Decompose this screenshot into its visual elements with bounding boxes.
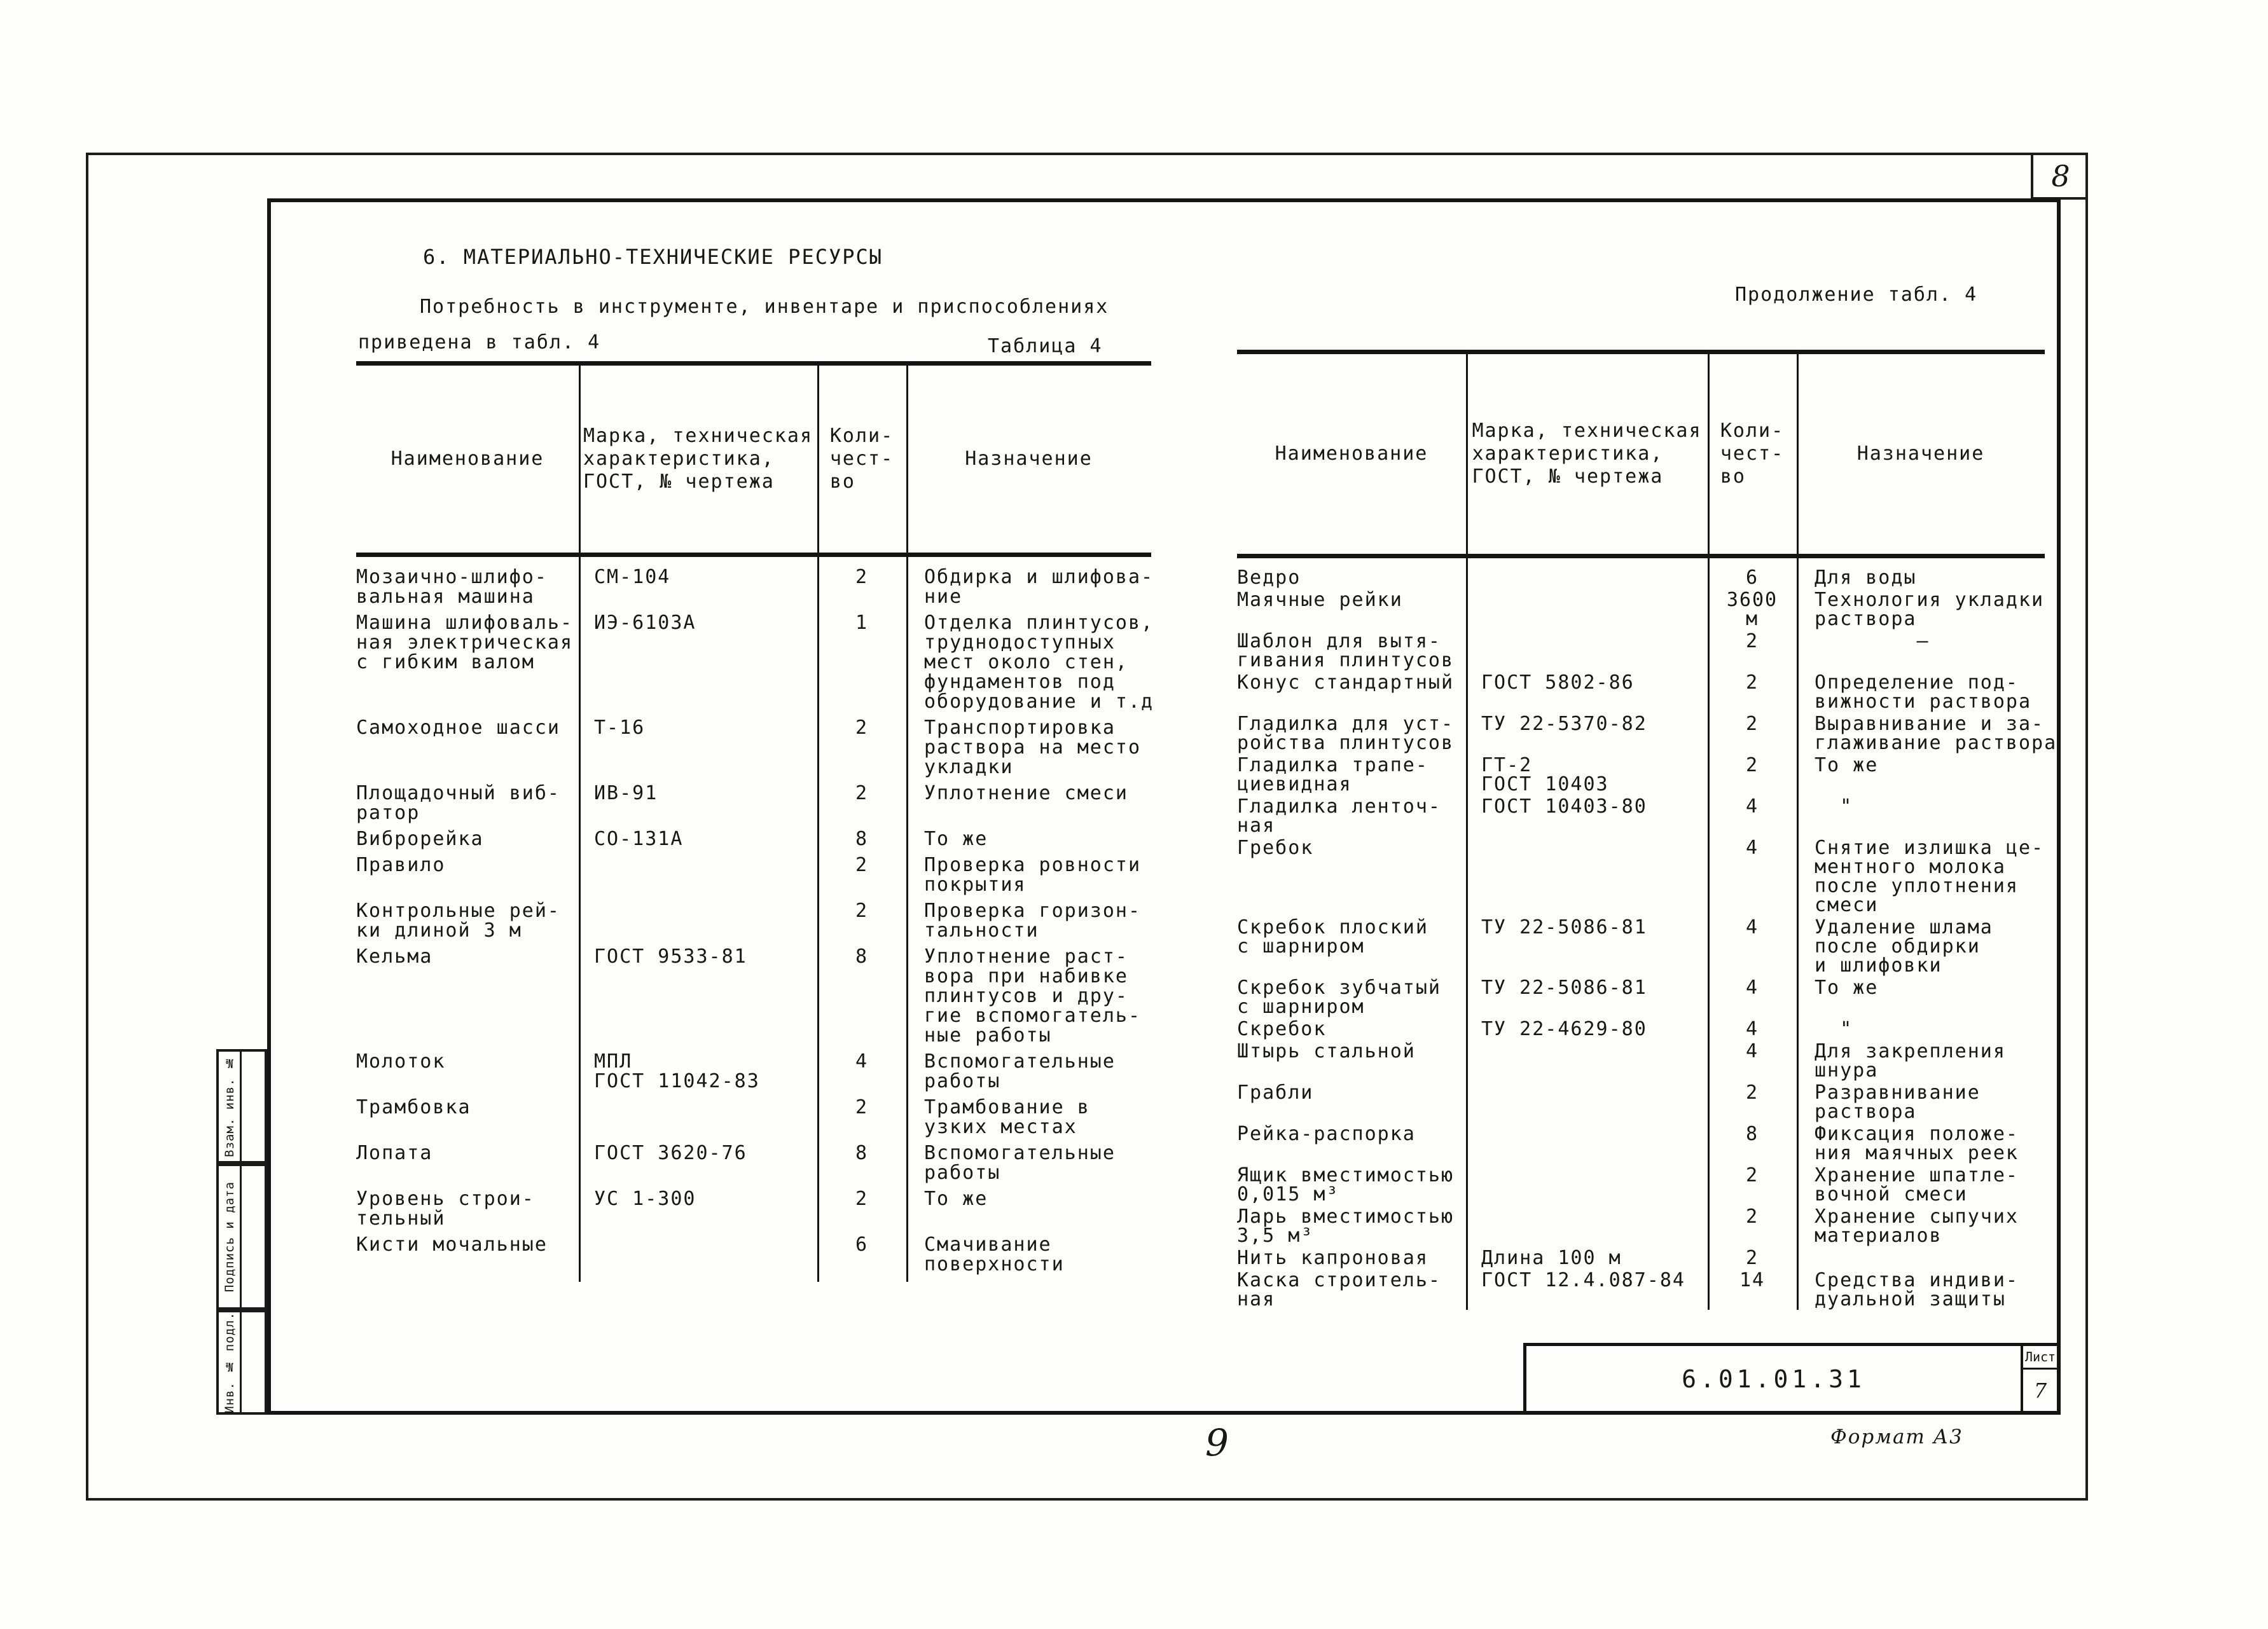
cell-purpose: Средства индиви- дуальной защиты [1797,1271,2045,1309]
table-row: Штырь стальной 4 Для закрепления шнура [1237,1042,2045,1080]
cell-qty: 2 [817,901,906,940]
cell-purpose: Уплотнение раст- вора при набивке плинту… [906,947,1151,1045]
header-purpose: Назначение [1797,354,2045,554]
cell-mark [1466,591,1708,629]
section-title: 6. МАТЕРИАЛЬНО-ТЕХНИЧЕСКИЕ РЕСУРСЫ [423,245,883,269]
cell-qty: 4 [1708,1042,1797,1080]
table-row: Трамбовка 2 Трамбование в узких местах [356,1097,1151,1137]
cell-purpose: То же [1797,979,2045,1017]
table-row: Кельма ГОСТ 9533-81 8 Уплотнение раст- в… [356,947,1151,1045]
title-block-sheet-column: Лист 7 [2021,1346,2057,1412]
cell-mark [1466,1042,1708,1080]
intro-line-1: Потребность в инструменте, инвентаре и п… [420,296,1109,318]
cell-qty: 2 [817,1189,906,1228]
cell-name: Ящик вместимостью 0,015 м³ [1237,1166,1466,1204]
cell-name: Конус стандартный [1237,673,1466,711]
cell-mark: ИВ-91 [579,783,817,823]
cell-name: Мозаично-шлифо- вальная машина [356,567,579,607]
table-row: Скребок ТУ 22-4629-80 4 " [1237,1020,2045,1039]
sheet-label: Лист [2023,1346,2057,1370]
table-row: Грабли 2 Разравнивание раствора [1237,1083,2045,1122]
table-header: Наименование Марка, техническая характер… [356,361,1151,557]
cell-purpose: Разравнивание раствора [1797,1083,2045,1122]
cell-name: Маячные рейки [1237,591,1466,629]
cell-mark: ИЭ-6103А [579,613,817,711]
cell-name: Машина шлифоваль- ная электрическая с ги… [356,613,579,711]
cell-mark [1466,839,1708,915]
cell-name: Контрольные рей- ки длиной 3 м [356,901,579,940]
cell-mark [579,855,817,895]
cell-purpose: – [1797,632,2045,670]
stamp-cell-vzam: Взам. инв. № [216,1049,267,1164]
cell-purpose: Вспомогательные работы [906,1143,1151,1183]
cell-purpose: Проверка горизон- тальности [906,901,1151,940]
table-row: Кисти мочальные 6 Смачивание поверхности [356,1235,1151,1274]
cell-name: Грабли [1237,1083,1466,1122]
cell-purpose: Уплотнение смеси [906,783,1151,823]
header-mark: Марка, техническая характеристика, ГОСТ,… [1466,354,1708,554]
cell-name: Молоток [356,1052,579,1091]
cell-mark: ГОСТ 9533-81 [579,947,817,1045]
table-row: Виброрейка СО-131А 8 То же [356,829,1151,849]
cell-purpose: То же [1797,756,2045,794]
table-row: Машина шлифоваль- ная электрическая с ги… [356,613,1151,711]
cell-name: Правило [356,855,579,895]
stamp-blank-field [242,1166,265,1307]
cell-name: Гладилка трапе- циевидная [1237,756,1466,794]
cell-qty: 4 [1708,1020,1797,1039]
stamp-cell-podpis: Подпись и дата [216,1164,267,1310]
table-row: Ведро 6 Для воды [1237,568,2045,588]
table-row: Контрольные рей- ки длиной 3 м 2 Проверк… [356,901,1151,940]
cell-purpose: Фиксация положе- ния маячных реек [1797,1125,2045,1163]
document-page: 8 6. МАТЕРИАЛЬНО-ТЕХНИЧЕСКИЕ РЕСУРСЫ Пот… [0,0,2268,1629]
cell-name: Скребок [1237,1020,1466,1039]
cell-purpose: Для воды [1797,568,2045,588]
table-header: Наименование Марка, техническая характер… [1237,350,2045,558]
stamp-label-box: Инв. № подл. [219,1312,242,1412]
cell-mark [579,901,817,940]
table-row: Гребок 4 Снятие излишка це- ментного мол… [1237,839,2045,915]
sheet-value: 7 [2023,1370,2057,1412]
cell-purpose: " [1797,1020,2045,1039]
table-row: Рейка-распорка 8 Фиксация положе- ния ма… [1237,1125,2045,1163]
cell-mark [1466,1083,1708,1122]
cell-qty: 2 [817,783,906,823]
cell-name: Скребок плоский с шарниром [1237,918,1466,975]
cell-qty: 4 [1708,839,1797,915]
cell-name: Нить капроновая [1237,1249,1466,1268]
cell-qty: 2 [1708,632,1797,670]
document-number: 6.01.01.31 [1526,1346,2021,1412]
cell-purpose: Для закрепления шнура [1797,1042,2045,1080]
stamp-label-vzam-inv: Взам. инв. № [223,1055,237,1157]
table-row: Маячные рейки 3600 м Технология укладки … [1237,591,2045,629]
cell-qty: 2 [817,1097,906,1137]
stamp-label-box: Подпись и дата [219,1166,242,1307]
header-qty: Коли- чест- во [817,366,906,553]
cell-mark: Т-16 [579,718,817,777]
stamp-blank-field [242,1312,265,1412]
cell-qty: 2 [1708,673,1797,711]
cell-name: Рейка-распорка [1237,1125,1466,1163]
table-row: Шаблон для вытя- гивания плинтусов 2 – [1237,632,2045,670]
cell-purpose: Отделка плинтусов, труднодоступных мест … [906,613,1151,711]
cell-purpose: Обдирка и шлифова- ние [906,567,1151,607]
table-body: Мозаично-шлифо- вальная машина СМ-104 2 … [356,557,1151,1274]
table-row: Конус стандартный ГОСТ 5802-86 2 Определ… [1237,673,2045,711]
title-block: 6.01.01.31 Лист 7 [1523,1343,2061,1415]
stamp-blank-field [242,1052,265,1161]
cell-name: Гребок [1237,839,1466,915]
cell-qty: 2 [1708,1166,1797,1204]
cell-qty: 4 [1708,979,1797,1017]
cell-mark: ТУ 22-5086-81 [1466,979,1708,1017]
cell-mark: ТУ 22-5370-82 [1466,715,1708,753]
table-row: Гладилка для уст- ройства плинтусов ТУ 2… [1237,715,2045,753]
cell-purpose: Снятие излишка це- ментного молока после… [1797,839,2045,915]
table-row: Самоходное шасси Т-16 2 Транспортировка … [356,718,1151,777]
cell-purpose: Смачивание поверхности [906,1235,1151,1274]
cell-purpose: Хранение сыпучих материалов [1797,1207,2045,1246]
table-row: Ящик вместимостью 0,015 м³ 2 Хранение шп… [1237,1166,2045,1204]
cell-name: Кельма [356,947,579,1045]
table-body: Ведро 6 Для воды Маячные рейки 3600 м Те… [1237,558,2045,1309]
cell-qty: 3600 м [1708,591,1797,629]
header-name: Наименование [1237,354,1466,554]
table-row: Молоток МПЛ ГОСТ 11042-83 4 Вспомогатель… [356,1052,1151,1091]
column-divider [1797,350,1799,1310]
cell-qty: 8 [817,947,906,1045]
cell-qty: 2 [1708,756,1797,794]
stamp-cell-inv: Инв. № подл. [216,1310,267,1415]
cell-name: Шаблон для вытя- гивания плинтусов [1237,632,1466,670]
cell-name: Гладилка ленточ- ная [1237,797,1466,835]
cell-name: Штырь стальной [1237,1042,1466,1080]
cell-qty: 6 [817,1235,906,1274]
cell-name: Лопата [356,1143,579,1183]
cell-purpose: Проверка ровности покрытия [906,855,1151,895]
sheet-number-top: 8 [2051,159,2070,193]
cell-purpose: Транспортировка раствора на место укладк… [906,718,1151,777]
table-row: Правило 2 Проверка ровности покрытия [356,855,1151,895]
intro-line-2: приведена в табл. 4 [358,331,600,354]
cell-mark: ГОСТ 10403-80 [1466,797,1708,835]
table-row: Гладилка трапе- циевидная ГТ-2 ГОСТ 1040… [1237,756,2045,794]
cell-qty: 2 [1708,715,1797,753]
cell-name: Ларь вместимостью 3,5 м³ [1237,1207,1466,1246]
format-label: Формат А3 [1830,1426,1963,1448]
cell-mark: ГОСТ 3620-76 [579,1143,817,1183]
stamp-label-podpis-data: Подпись и дата [223,1181,237,1292]
cell-qty: 8 [817,829,906,849]
cell-qty: 14 [1708,1271,1797,1309]
cell-purpose: Вспомогательные работы [906,1052,1151,1091]
cell-qty: 2 [817,718,906,777]
cell-mark [579,1097,817,1137]
cell-qty: 6 [1708,568,1797,588]
sheet-number-box: 8 [2031,155,2088,200]
cell-mark: ГТ-2 ГОСТ 10403 [1466,756,1708,794]
cell-mark [1466,1207,1708,1246]
column-divider [1708,350,1710,1310]
cell-mark: СМ-104 [579,567,817,607]
cell-purpose: То же [906,1189,1151,1228]
cell-mark: ТУ 22-4629-80 [1466,1020,1708,1039]
cell-purpose: Удаление шлама после обдирки и шлифовки [1797,918,2045,975]
column-divider [1466,350,1468,1310]
cell-mark [1466,632,1708,670]
cell-mark: СО-131А [579,829,817,849]
cell-name: Трамбовка [356,1097,579,1137]
cell-mark [1466,1125,1708,1163]
table-row: Скребок зубчатый с шарниром ТУ 22-5086-8… [1237,979,2045,1017]
column-divider [817,361,819,1282]
tools-table-left: Наименование Марка, техническая характер… [356,361,1151,1281]
cell-name: Площадочный виб- ратор [356,783,579,823]
cell-mark: ГОСТ 12.4.087-84 [1466,1271,1708,1309]
table-row: Скребок плоский с шарниром ТУ 22-5086-81… [1237,918,2045,975]
cell-mark [579,1235,817,1274]
table-row: Мозаично-шлифо- вальная машина СМ-104 2 … [356,567,1151,607]
cell-qty: 4 [1708,797,1797,835]
cell-qty: 2 [1708,1083,1797,1122]
cell-mark: УС 1-300 [579,1189,817,1228]
cell-mark: Длина 100 м [1466,1249,1708,1268]
table-row: Уровень строи- тельный УС 1-300 2 То же [356,1189,1151,1228]
header-name: Наименование [356,366,579,553]
table-row: Каска строитель- ная ГОСТ 12.4.087-84 14… [1237,1271,2045,1309]
cell-qty: 2 [1708,1207,1797,1246]
cell-qty: 2 [1708,1249,1797,1268]
cell-qty: 1 [817,613,906,711]
cell-qty: 2 [817,855,906,895]
cell-name: Самоходное шасси [356,718,579,777]
stamp-label-inv-podl: Инв. № подл. [223,1312,237,1413]
cell-name: Каска строитель- ная [1237,1271,1466,1309]
cell-qty: 8 [1708,1125,1797,1163]
cell-name: Виброрейка [356,829,579,849]
cell-purpose: Трамбование в узких местах [906,1097,1151,1137]
stamp-label-box: Взам. инв. № [219,1052,242,1161]
column-divider [906,361,908,1282]
cell-purpose [1797,1249,2045,1268]
cell-name: Гладилка для уст- ройства плинтусов [1237,715,1466,753]
cell-mark: ГОСТ 5802-86 [1466,673,1708,711]
table-caption: Таблица 4 [988,335,1103,357]
table-row: Лопата ГОСТ 3620-76 8 Вспомогательные ра… [356,1143,1151,1183]
cell-name: Ведро [1237,568,1466,588]
cell-purpose: Определение под- вижности раствора [1797,673,2045,711]
table-row: Площадочный виб- ратор ИВ-91 2 Уплотнени… [356,783,1151,823]
cell-name: Скребок зубчатый с шарниром [1237,979,1466,1017]
header-mark: Марка, техническая характеристика, ГОСТ,… [579,366,817,553]
cell-mark: МПЛ ГОСТ 11042-83 [579,1052,817,1091]
page-number-bottom: 9 [1205,1421,1229,1464]
cell-mark [1466,568,1708,588]
header-qty: Коли- чест- во [1708,354,1797,554]
cell-mark [1466,1166,1708,1204]
cell-purpose: Хранение шпатле- вочной смеси [1797,1166,2045,1204]
cell-qty: 2 [817,567,906,607]
cell-qty: 4 [817,1052,906,1091]
cell-purpose: Технология укладки раствора [1797,591,2045,629]
continuation-caption: Продолжение табл. 4 [1735,284,1977,306]
table-row: Гладилка ленточ- ная ГОСТ 10403-80 4 " [1237,797,2045,835]
column-divider [579,361,581,1282]
cell-qty: 8 [817,1143,906,1183]
cell-purpose: То же [906,829,1151,849]
header-purpose: Назначение [906,366,1151,553]
cell-name: Кисти мочальные [356,1235,579,1274]
cell-mark: ТУ 22-5086-81 [1466,918,1708,975]
tools-table-right: Наименование Марка, техническая характер… [1237,350,2045,1312]
cell-purpose: " [1797,797,2045,835]
cell-purpose: Выравнивание и за- глаживание раствора [1797,715,2045,753]
table-row: Нить капроновая Длина 100 м 2 [1237,1249,2045,1268]
table-row: Ларь вместимостью 3,5 м³ 2 Хранение сыпу… [1237,1207,2045,1246]
cell-name: Уровень строи- тельный [356,1189,579,1228]
cell-qty: 4 [1708,918,1797,975]
